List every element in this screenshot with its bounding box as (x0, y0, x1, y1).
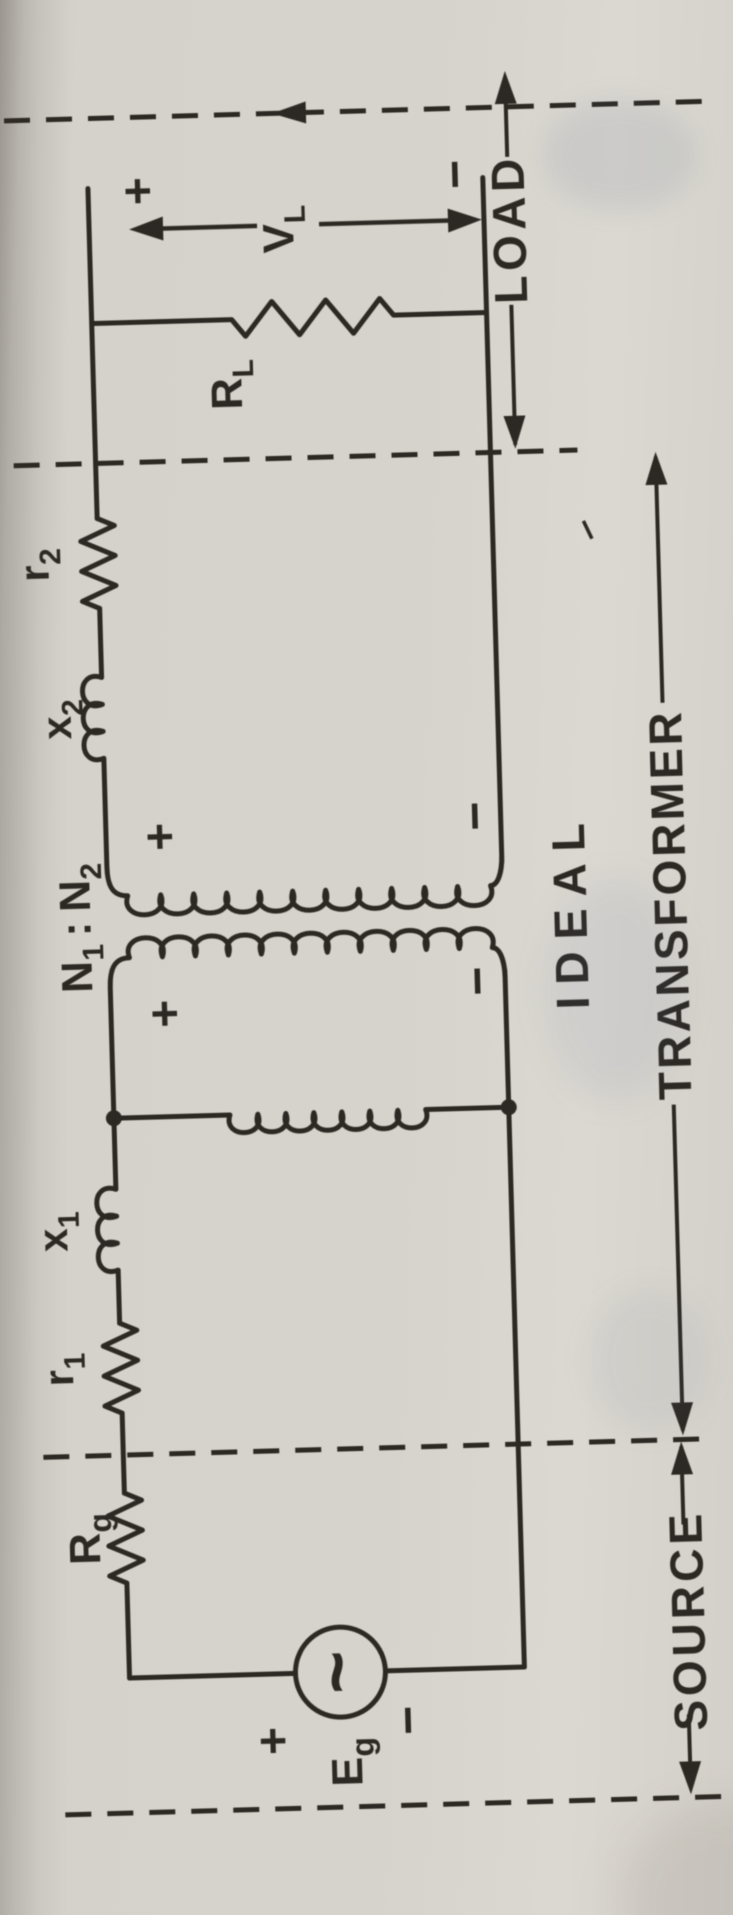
ac-source-icon: ~ (294, 1649, 378, 1695)
load-dimension-arrowhead-right (494, 71, 517, 105)
transformer-dimension-line-right (656, 457, 663, 703)
secondary-minus-sign: − (446, 801, 503, 832)
top-rail-wire-source (127, 1583, 130, 1678)
n2-winding (107, 855, 503, 916)
rl-resistor-branch (91, 296, 487, 341)
vl-label: VL (253, 205, 312, 254)
transformer-dimension-arrowhead-left (671, 1402, 694, 1436)
transformer-section-label: TRANSFORMER (639, 709, 702, 1101)
load-section-label: LOAD (481, 153, 537, 305)
r1-resistor (103, 1323, 139, 1414)
secondary-plus-sign: + (134, 822, 188, 852)
transformer-dimension-line-left (674, 1105, 683, 1431)
left-boundary-dashed-line (65, 1796, 733, 1815)
source-dimension-arrowhead-left (679, 1761, 702, 1795)
top-rail-wire-c (110, 988, 116, 1189)
top-rail-wire-e (100, 608, 102, 677)
circuit-figure: ~ Rg r1 x1 N1:N2 x2 r2 RL VL Eg + − + − … (0, 0, 733, 1911)
junction-dot-bottom (501, 1099, 517, 1115)
circuit-svg: ~ Rg r1 x1 N1:N2 x2 r2 RL VL Eg + − + − … (0, 0, 733, 1911)
load-plus-sign: + (112, 176, 166, 206)
top-rail-wire-b (118, 1270, 119, 1323)
transformer-dimension-arrowhead-right (645, 452, 668, 486)
top-rail-wire-d (104, 758, 107, 866)
rl-label: RL (202, 359, 261, 411)
top-rail-wire-f (88, 189, 97, 519)
n1-winding (109, 928, 505, 989)
junction-dot-top (106, 1110, 122, 1126)
vl-arrow-head-top (129, 217, 164, 242)
eg-label: Eg (322, 1737, 381, 1788)
rg-resistor (107, 1493, 143, 1584)
bottom-rail-wire-primary (505, 977, 524, 1667)
page-edge-shadow (0, 0, 70, 1915)
photo-background: ~ Rg r1 x1 N1:N2 x2 r2 RL VL Eg + − + − … (0, 0, 733, 1915)
x2-inductor (82, 676, 104, 760)
load-dimension-line-right (506, 101, 508, 157)
source-dimension-arrowhead-right (670, 1441, 693, 1475)
magnetizing-inductor (229, 1109, 427, 1133)
vl-arrow-head-bottom (448, 208, 483, 233)
source-plus-sign: + (247, 1726, 301, 1756)
x1-inductor (96, 1188, 118, 1272)
load-minus-sign: − (426, 159, 483, 190)
source-transformer-boundary-dashed-line (43, 1439, 713, 1458)
top-rail-wire-a (122, 1413, 124, 1493)
source-minus-sign: − (379, 1705, 436, 1736)
primary-minus-sign: − (449, 966, 506, 997)
load-dimension-arrowhead-left (503, 415, 526, 449)
right-boundary-dashed-line (4, 101, 709, 121)
primary-plus-sign: + (139, 999, 193, 1029)
r2-resistor (80, 518, 116, 609)
stray-mark (583, 521, 591, 539)
source-section-label: SOURCE (659, 1509, 717, 1731)
ideal-label: IDEAL (542, 811, 600, 1010)
right-boundary-arrowhead (272, 101, 307, 124)
